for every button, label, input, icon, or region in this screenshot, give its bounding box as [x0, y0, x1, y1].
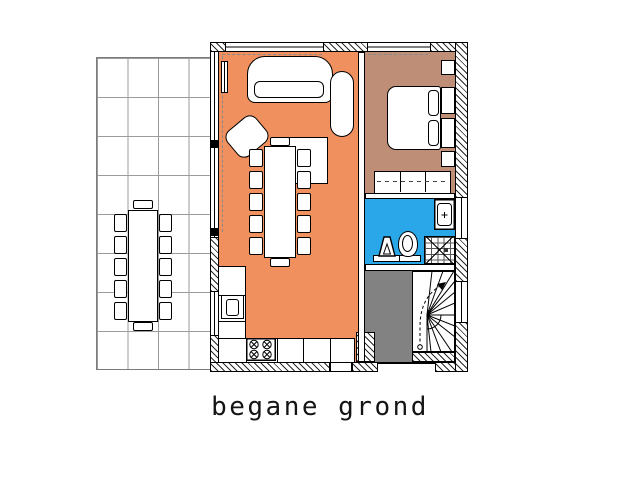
chaise-longue — [330, 71, 354, 137]
garden-chair — [114, 302, 127, 320]
wall-segment — [455, 42, 468, 198]
interior-wall — [365, 193, 455, 199]
wall-segment — [323, 42, 368, 52]
dining-chair — [249, 149, 263, 167]
dining-chair — [297, 171, 311, 189]
garden-chair — [114, 214, 127, 232]
shower-drain — [444, 248, 448, 252]
garden-chair — [114, 258, 127, 276]
window — [210, 292, 219, 335]
window-dash-line — [368, 54, 428, 55]
dining-chair — [270, 137, 290, 146]
garden-chair — [159, 302, 172, 320]
pillow — [428, 120, 439, 146]
garden-table — [128, 210, 158, 322]
wall-segment — [210, 42, 226, 52]
window-mullion — [211, 140, 218, 148]
wall-segment — [210, 237, 219, 292]
garden-chair — [159, 214, 172, 232]
garden-chair — [159, 258, 172, 276]
window — [368, 42, 430, 52]
window-mullion — [211, 228, 218, 236]
door-threshold — [330, 362, 352, 372]
sink-basin — [226, 299, 239, 316]
window-dash-line — [222, 54, 322, 55]
garden-chair — [159, 280, 172, 298]
side-cabinet — [441, 60, 455, 75]
washbasin — [434, 199, 455, 230]
dining-chair — [297, 215, 311, 233]
garden-chair — [114, 280, 127, 298]
side-cabinet — [441, 151, 455, 167]
dining-table — [264, 146, 296, 258]
wardrobe-divider — [400, 172, 401, 192]
wall-segment — [210, 362, 330, 372]
hand-basin — [376, 234, 398, 257]
wall-segment — [455, 238, 468, 282]
wall-segment — [352, 362, 378, 372]
kitchen-counter-bottom — [219, 338, 355, 362]
dining-chair — [270, 258, 290, 267]
window — [226, 42, 323, 52]
garden-chair — [133, 200, 153, 209]
sofa-cushion — [254, 81, 324, 98]
garden-chair — [133, 322, 153, 331]
wardrobe-rail — [377, 181, 448, 182]
dining-chair — [249, 215, 263, 233]
pillow — [428, 90, 439, 116]
wall-segment — [455, 322, 468, 372]
dining-chair — [297, 237, 311, 255]
cooktop — [246, 338, 276, 361]
window — [455, 198, 468, 238]
floor-label: begane grond — [0, 392, 640, 422]
floor-plan-canvas: begane grond — [0, 0, 640, 480]
wall-segment — [412, 352, 455, 362]
entrance-door — [378, 362, 435, 372]
dining-chair — [249, 193, 263, 211]
toilet — [398, 231, 418, 257]
wardrobe-divider — [425, 172, 426, 192]
counter-divider — [277, 339, 278, 363]
radiator — [221, 61, 228, 93]
dining-chair — [249, 171, 263, 189]
garden-chair — [159, 236, 172, 254]
wardrobe — [374, 171, 451, 194]
dining-chair — [249, 237, 263, 255]
dining-chair — [297, 149, 311, 167]
toilet-bowl — [402, 235, 413, 252]
shower — [424, 236, 455, 264]
kitchen-sink — [221, 295, 244, 319]
window — [455, 282, 468, 322]
garden-chair — [114, 236, 127, 254]
interior-wall — [365, 264, 455, 271]
counter-divider — [330, 339, 331, 363]
side-cabinet — [441, 118, 455, 148]
dining-chair — [297, 193, 311, 211]
side-cabinet — [441, 87, 455, 114]
interior-wall — [358, 52, 365, 362]
winder-staircase — [412, 271, 455, 352]
counter-divider — [303, 339, 304, 363]
sofa — [247, 56, 333, 103]
counter-divider — [219, 321, 246, 322]
